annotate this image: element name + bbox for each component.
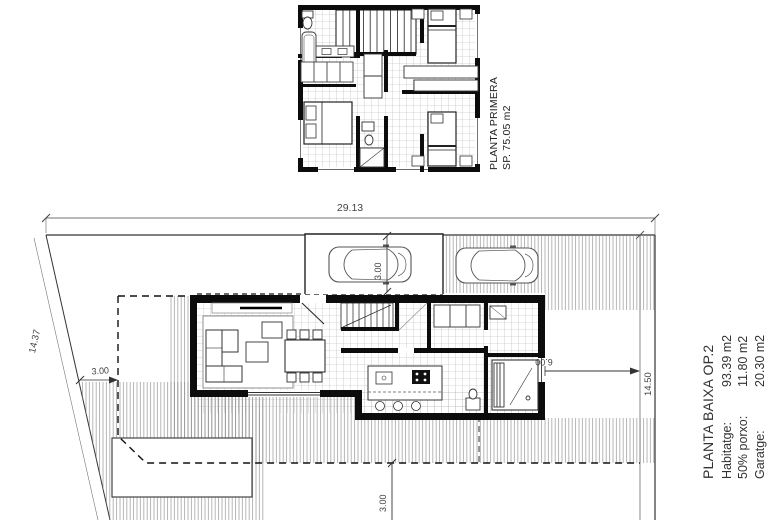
- ground-floor-house: [190, 295, 545, 420]
- legend-label: 50% porxo:: [736, 387, 750, 479]
- upper-bed-bottom-left: [304, 102, 352, 144]
- dining-set: [285, 330, 325, 382]
- dimension-plot-width: [42, 214, 659, 235]
- dimension-label-plot-width: 29.13: [310, 203, 390, 214]
- legend-row-habitatge: Habitatge: 93.39 m2: [720, 299, 734, 479]
- legend-row-garatge: Garatge: 20.30 m2: [753, 299, 767, 479]
- garden-pad: [112, 438, 252, 497]
- coffee-table: [246, 342, 268, 362]
- kitchen-sink: [376, 372, 392, 384]
- legend-value: 93.39 m2: [720, 299, 734, 387]
- upper-plan-area: SP. 75.05 m2: [501, 86, 514, 170]
- dimension-rear-setback: [388, 459, 396, 520]
- site-plan-title-block: PLANTA BAIXA OP.2 Habitatge: 93.39 m2 50…: [700, 299, 776, 479]
- upper-plan-title-block: PLANTA PRIMERA SP. 75.05 m2: [488, 86, 516, 170]
- legend-label: Habitatge:: [720, 387, 734, 479]
- legend-row-porxo: 50% porxo: 11.80 m2: [736, 299, 750, 479]
- car-on-driveway: [456, 246, 538, 286]
- upper-plan-title: PLANTA PRIMERA: [488, 86, 501, 170]
- site-plan-title: PLANTA BAIXA OP.2: [700, 299, 716, 479]
- upper-floor-plan: [298, 5, 480, 172]
- legend-value: 11.80 m2: [736, 299, 750, 387]
- dimension-label-right-yard: 6.00: [522, 357, 566, 366]
- legend-label: Garatge:: [753, 387, 767, 479]
- dimension-label-plot-depth-right: 14.50: [644, 362, 654, 396]
- plan-drawing-canvas: [0, 0, 776, 520]
- architectural-plan-sheet: 29.13 14.37 14.50 3.00 3.00 3.00 6.00 PL…: [0, 0, 776, 520]
- site-plan: [34, 214, 659, 520]
- armchair: [262, 322, 282, 338]
- stove: [412, 370, 430, 384]
- dimension-label-garage-bay: 3.00: [374, 250, 383, 280]
- living-room-furniture: [203, 303, 293, 388]
- dimension-label-rear-setback: 3.00: [379, 482, 388, 512]
- car-in-garage: [329, 245, 411, 285]
- dimension-right-yard: [545, 366, 640, 376]
- legend-value: 20.30 m2: [753, 299, 767, 387]
